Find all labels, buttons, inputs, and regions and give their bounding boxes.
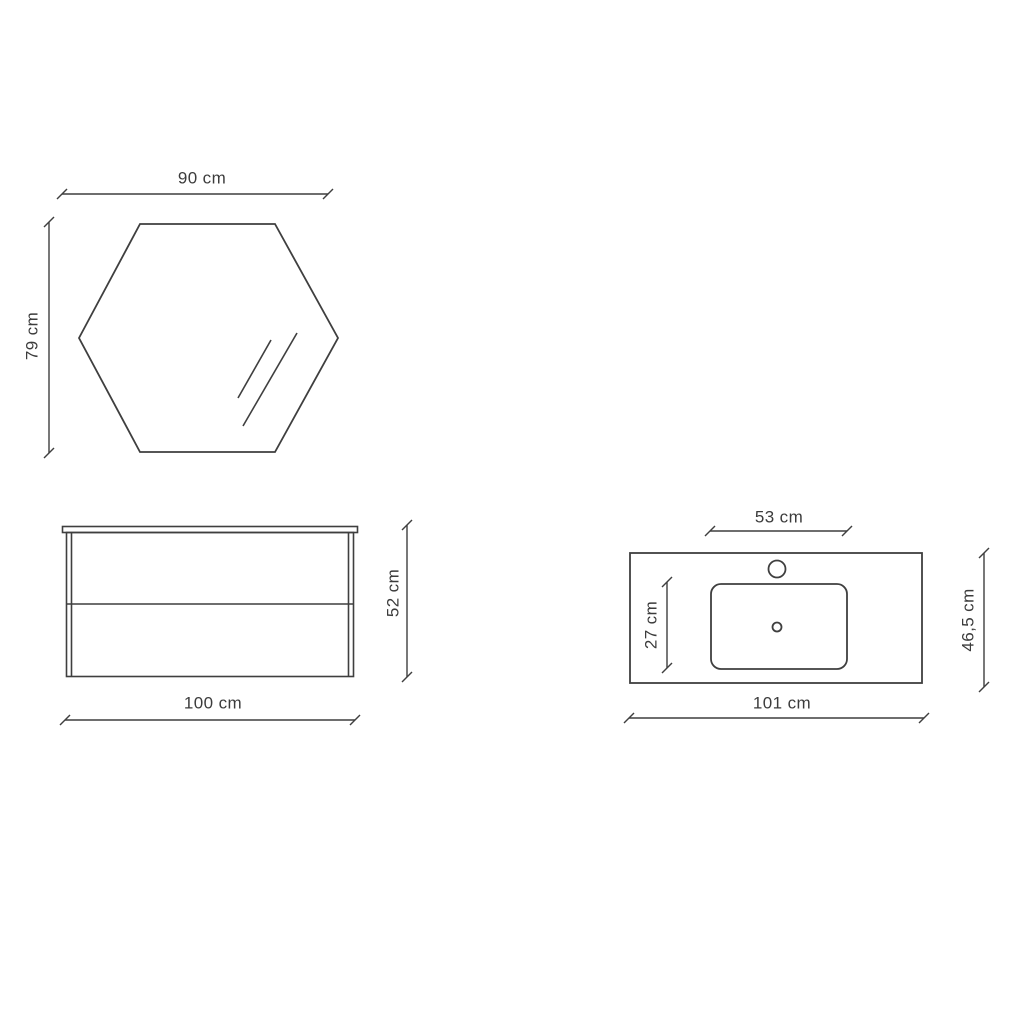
- washbasin-depth-label: 46,5 cm: [960, 588, 977, 651]
- washbasin-width-dimension: [624, 713, 929, 723]
- cabinet-height-dimension: [402, 520, 412, 682]
- faucet-hole: [769, 561, 786, 578]
- drain-hole: [773, 623, 782, 632]
- dimension-diagram: 90 cm 79 cm 52 cm 100 cm 53 cm 27 cm 46,…: [0, 0, 1024, 1024]
- cabinet-width-dimension: [60, 715, 360, 725]
- mirror-front-view: [44, 189, 338, 458]
- cabinet-countertop: [63, 527, 358, 533]
- washbasin-basin-outline: [711, 584, 847, 669]
- mirror-height-label: 79 cm: [24, 312, 41, 360]
- mirror-reflection-line-2: [243, 333, 297, 426]
- basin-width-dimension: [705, 526, 852, 536]
- washbasin-countertop-outline: [630, 553, 922, 683]
- cabinet-width-label: 100 cm: [184, 695, 242, 712]
- mirror-hexagon-outline: [79, 224, 338, 452]
- basin-width-label: 53 cm: [755, 509, 803, 526]
- basin-depth-dimension: [662, 577, 672, 673]
- washbasin-depth-dimension: [979, 548, 989, 692]
- mirror-width-dimension: [57, 189, 333, 199]
- diagram-linework: [0, 0, 1024, 1024]
- washbasin-width-label: 101 cm: [753, 695, 811, 712]
- cabinet-height-label: 52 cm: [385, 569, 402, 617]
- mirror-width-label: 90 cm: [178, 170, 226, 187]
- mirror-height-dimension: [44, 217, 54, 458]
- mirror-reflection-line-1: [238, 340, 271, 398]
- basin-depth-label: 27 cm: [643, 601, 660, 649]
